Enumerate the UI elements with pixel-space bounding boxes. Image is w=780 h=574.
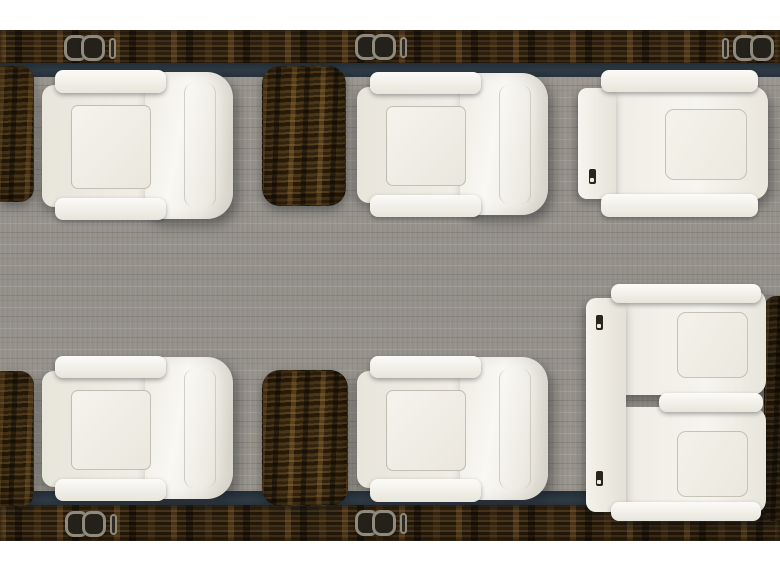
ledge-marker-top-left xyxy=(64,34,124,62)
ledge-marker-top-right xyxy=(710,34,774,62)
infinity-inlay-icon xyxy=(355,510,396,536)
seatbelt-slot-icon xyxy=(596,471,603,486)
divan-armrest-top xyxy=(611,284,760,303)
latch-pill-icon xyxy=(109,38,116,59)
seat-cushion xyxy=(386,106,466,187)
seat-armrest-bottom xyxy=(370,195,481,217)
latch-pill-icon xyxy=(110,514,117,535)
divan-two-place xyxy=(586,284,768,521)
seat-armrest-top xyxy=(370,72,481,94)
divan-backrest xyxy=(586,298,626,511)
seat-armrest-bottom xyxy=(370,479,481,501)
divan-armrest-middle xyxy=(659,393,763,412)
inlay-lobe xyxy=(82,511,106,537)
seatbelt-slot-icon xyxy=(589,169,596,184)
club-seat-1 xyxy=(42,70,233,222)
cabinet-forward-center xyxy=(262,66,346,206)
seat-cushion-seam xyxy=(665,109,747,180)
seat-backrest xyxy=(145,72,233,219)
inlay-lobe xyxy=(372,510,396,536)
infinity-inlay-icon xyxy=(733,35,774,61)
seat-armrest-top xyxy=(601,70,759,93)
club-seat-4 xyxy=(357,356,548,503)
seat-backrest xyxy=(578,88,616,199)
ledge-marker-top-center xyxy=(355,33,415,61)
infinity-inlay-icon xyxy=(65,511,106,537)
seat-armrest-top xyxy=(55,356,166,378)
divan-armrest-bottom xyxy=(611,502,760,521)
ledge-marker-bottom-left xyxy=(65,510,125,538)
cabinet-aft-center xyxy=(262,370,348,506)
divan-cushion-seam-lower xyxy=(677,431,748,497)
seat-armrest-bottom xyxy=(55,198,166,221)
club-seat-2 xyxy=(357,72,548,218)
seat-armrest-top xyxy=(370,356,481,378)
seatbelt-slot-icon xyxy=(596,315,603,330)
seat-cushion xyxy=(71,390,151,471)
lounge-seat xyxy=(578,68,768,218)
seat-armrest-top xyxy=(55,70,166,93)
inlay-lobe xyxy=(81,35,105,61)
club-seat-3 xyxy=(42,356,233,502)
inlay-lobe xyxy=(372,34,396,60)
cabinet-forward-left xyxy=(0,66,34,202)
cabin-stage xyxy=(0,0,780,574)
seat-armrest-bottom xyxy=(55,479,166,501)
divan-cushion-seam-upper xyxy=(677,312,748,378)
seat-backrest xyxy=(460,73,548,215)
inlay-lobe xyxy=(750,35,774,61)
seat-backrest xyxy=(145,357,233,499)
seat-cushion xyxy=(386,390,466,471)
seat-armrest-bottom xyxy=(601,194,759,217)
latch-pill-icon xyxy=(400,37,407,58)
seat-cushion xyxy=(71,105,151,189)
latch-pill-icon xyxy=(722,38,729,59)
latch-pill-icon xyxy=(400,513,407,534)
cabinet-aft-left xyxy=(0,371,34,507)
ledge-marker-bottom-center xyxy=(355,509,415,537)
infinity-inlay-icon xyxy=(355,34,396,60)
infinity-inlay-icon xyxy=(64,35,105,61)
